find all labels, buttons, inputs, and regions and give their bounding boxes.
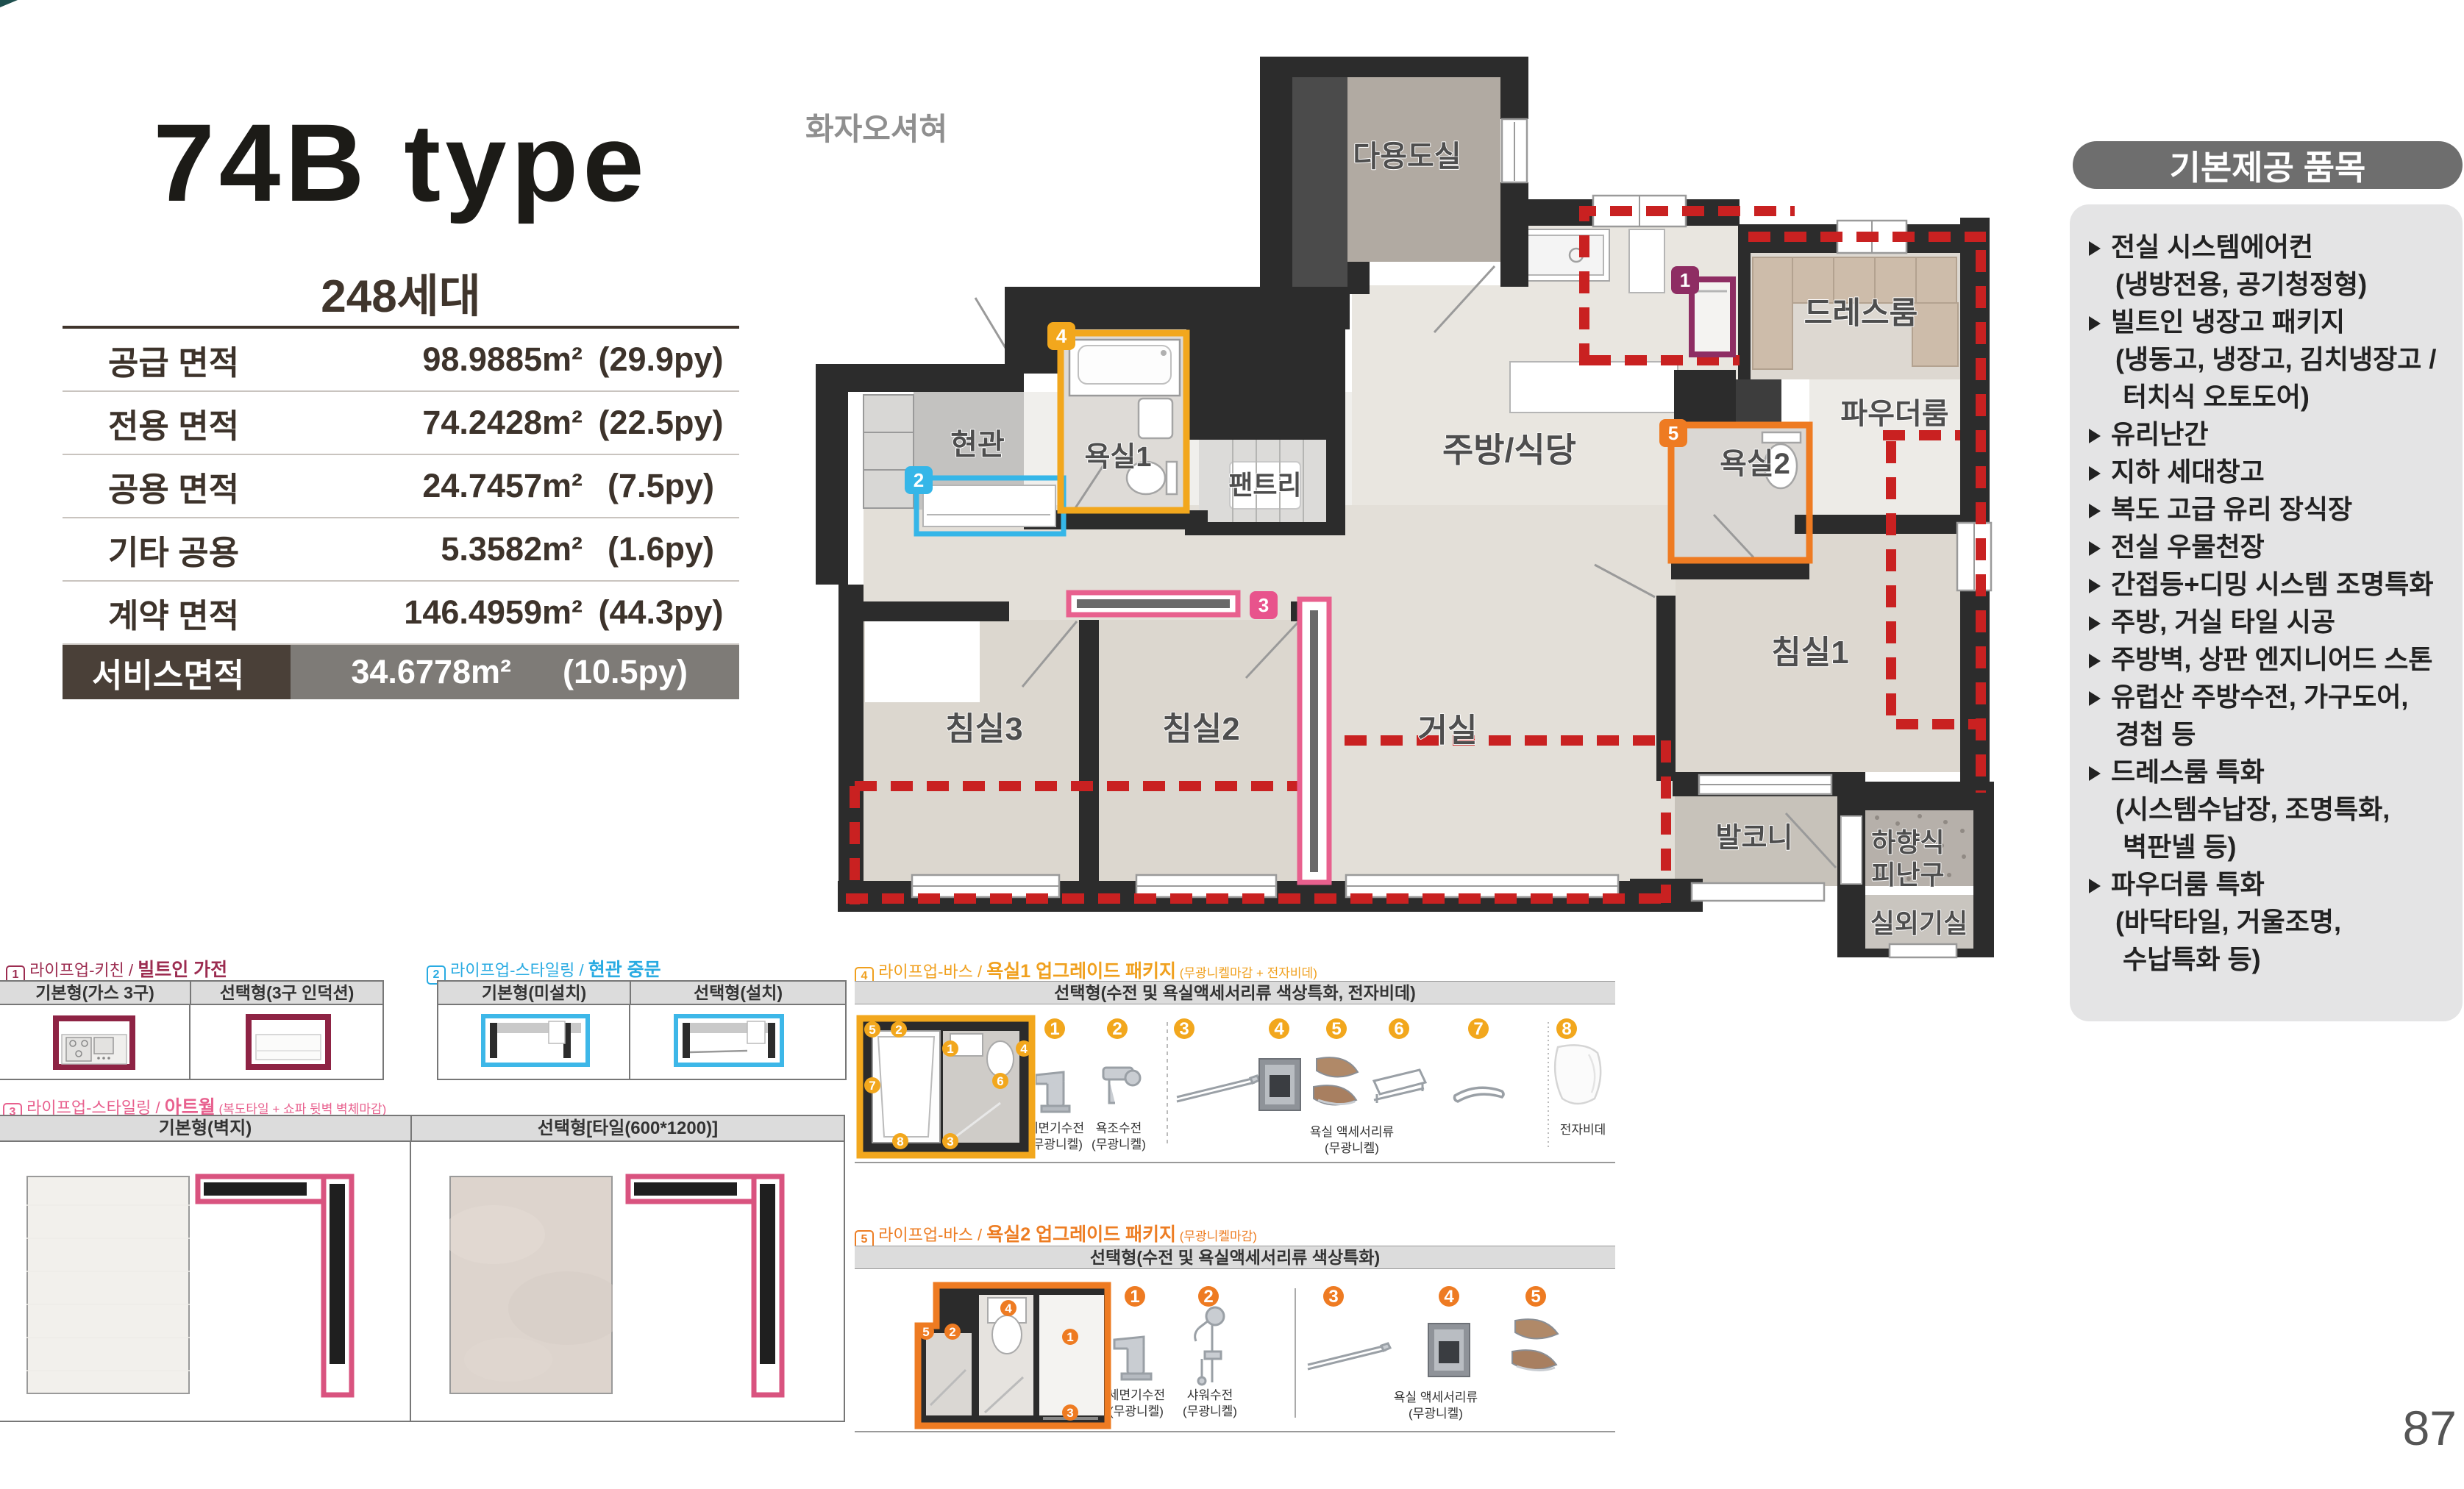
svg-text:1: 1 — [1050, 1019, 1059, 1039]
svg-text:4: 4 — [1005, 1301, 1012, 1315]
svg-text:(무광니켈): (무광니켈) — [1036, 1138, 1083, 1151]
svg-text:다용도실: 다용도실 — [1353, 140, 1461, 173]
svg-text:3: 3 — [1179, 1019, 1189, 1039]
svg-text:피난구: 피난구 — [1871, 860, 1944, 890]
svg-text:4: 4 — [1020, 1042, 1028, 1056]
svg-text:세면기수전: 세면기수전 — [1111, 1388, 1165, 1402]
svg-text:전자비데: 전자비데 — [1560, 1123, 1606, 1137]
svg-text:침실2: 침실2 — [1162, 711, 1239, 747]
svg-text:침실3: 침실3 — [945, 711, 1022, 747]
svg-text:4: 4 — [1444, 1287, 1454, 1307]
svg-text:욕조수전: 욕조수전 — [1096, 1121, 1142, 1135]
svg-text:8: 8 — [897, 1135, 903, 1149]
svg-text:7: 7 — [869, 1079, 875, 1093]
svg-text:화자오셔혀: 화자오셔혀 — [805, 112, 947, 146]
svg-text:5: 5 — [1531, 1287, 1540, 1307]
svg-text:욕실1: 욕실1 — [1084, 442, 1151, 473]
svg-text:욕실2: 욕실2 — [1720, 448, 1790, 480]
svg-text:1: 1 — [1130, 1287, 1139, 1307]
svg-text:1: 1 — [947, 1042, 953, 1056]
svg-text:실외기실: 실외기실 — [1870, 908, 1968, 938]
svg-text:(무광니켈): (무광니켈) — [1092, 1138, 1146, 1151]
svg-text:(무광니켈): (무광니켈) — [1325, 1141, 1379, 1155]
svg-text:3: 3 — [1258, 594, 1269, 616]
svg-text:(무광니켈): (무광니켈) — [1409, 1407, 1463, 1421]
svg-text:1: 1 — [1680, 269, 1690, 291]
svg-text:2: 2 — [949, 1325, 955, 1339]
svg-text:파우더룸: 파우더룸 — [1840, 398, 1948, 430]
svg-text:(무광니켈): (무광니켈) — [1111, 1404, 1164, 1418]
svg-text:현관: 현관 — [950, 429, 1005, 461]
svg-text:2: 2 — [914, 469, 924, 491]
svg-text:(무광니켈): (무광니켈) — [1183, 1404, 1237, 1418]
svg-text:침실1: 침실1 — [1771, 635, 1848, 671]
svg-text:주방/식당: 주방/식당 — [1442, 431, 1576, 469]
svg-text:4: 4 — [1056, 325, 1067, 347]
svg-text:2: 2 — [1112, 1019, 1122, 1039]
svg-text:6: 6 — [1394, 1019, 1403, 1039]
svg-text:3: 3 — [947, 1135, 953, 1149]
svg-text:5: 5 — [869, 1023, 875, 1037]
svg-text:2: 2 — [895, 1023, 902, 1037]
svg-text:6: 6 — [997, 1074, 1003, 1088]
svg-text:세면기수전: 세면기수전 — [1036, 1121, 1084, 1135]
svg-text:1: 1 — [1067, 1330, 1073, 1344]
svg-text:하향식: 하향식 — [1871, 827, 1944, 857]
svg-text:2: 2 — [1203, 1287, 1213, 1307]
svg-text:7: 7 — [1473, 1019, 1483, 1039]
svg-text:거실: 거실 — [1418, 713, 1478, 749]
svg-text:4: 4 — [1274, 1019, 1284, 1039]
svg-text:8: 8 — [1562, 1019, 1571, 1039]
svg-text:발코니: 발코니 — [1716, 823, 1793, 854]
svg-text:5: 5 — [922, 1325, 929, 1339]
svg-text:욕실 액세서리류: 욕실 액세서리류 — [1394, 1390, 1478, 1404]
svg-text:드레스룸: 드레스룸 — [1804, 296, 1918, 330]
svg-text:팬트리: 팬트리 — [1228, 470, 1301, 500]
svg-text:5: 5 — [1668, 422, 1678, 444]
svg-text:샤워수전: 샤워수전 — [1187, 1388, 1233, 1402]
svg-text:3: 3 — [1067, 1406, 1073, 1420]
svg-text:5: 5 — [1331, 1019, 1341, 1039]
svg-text:욕실 액세서리류: 욕실 액세서리류 — [1310, 1125, 1394, 1139]
svg-text:3: 3 — [1328, 1287, 1338, 1307]
